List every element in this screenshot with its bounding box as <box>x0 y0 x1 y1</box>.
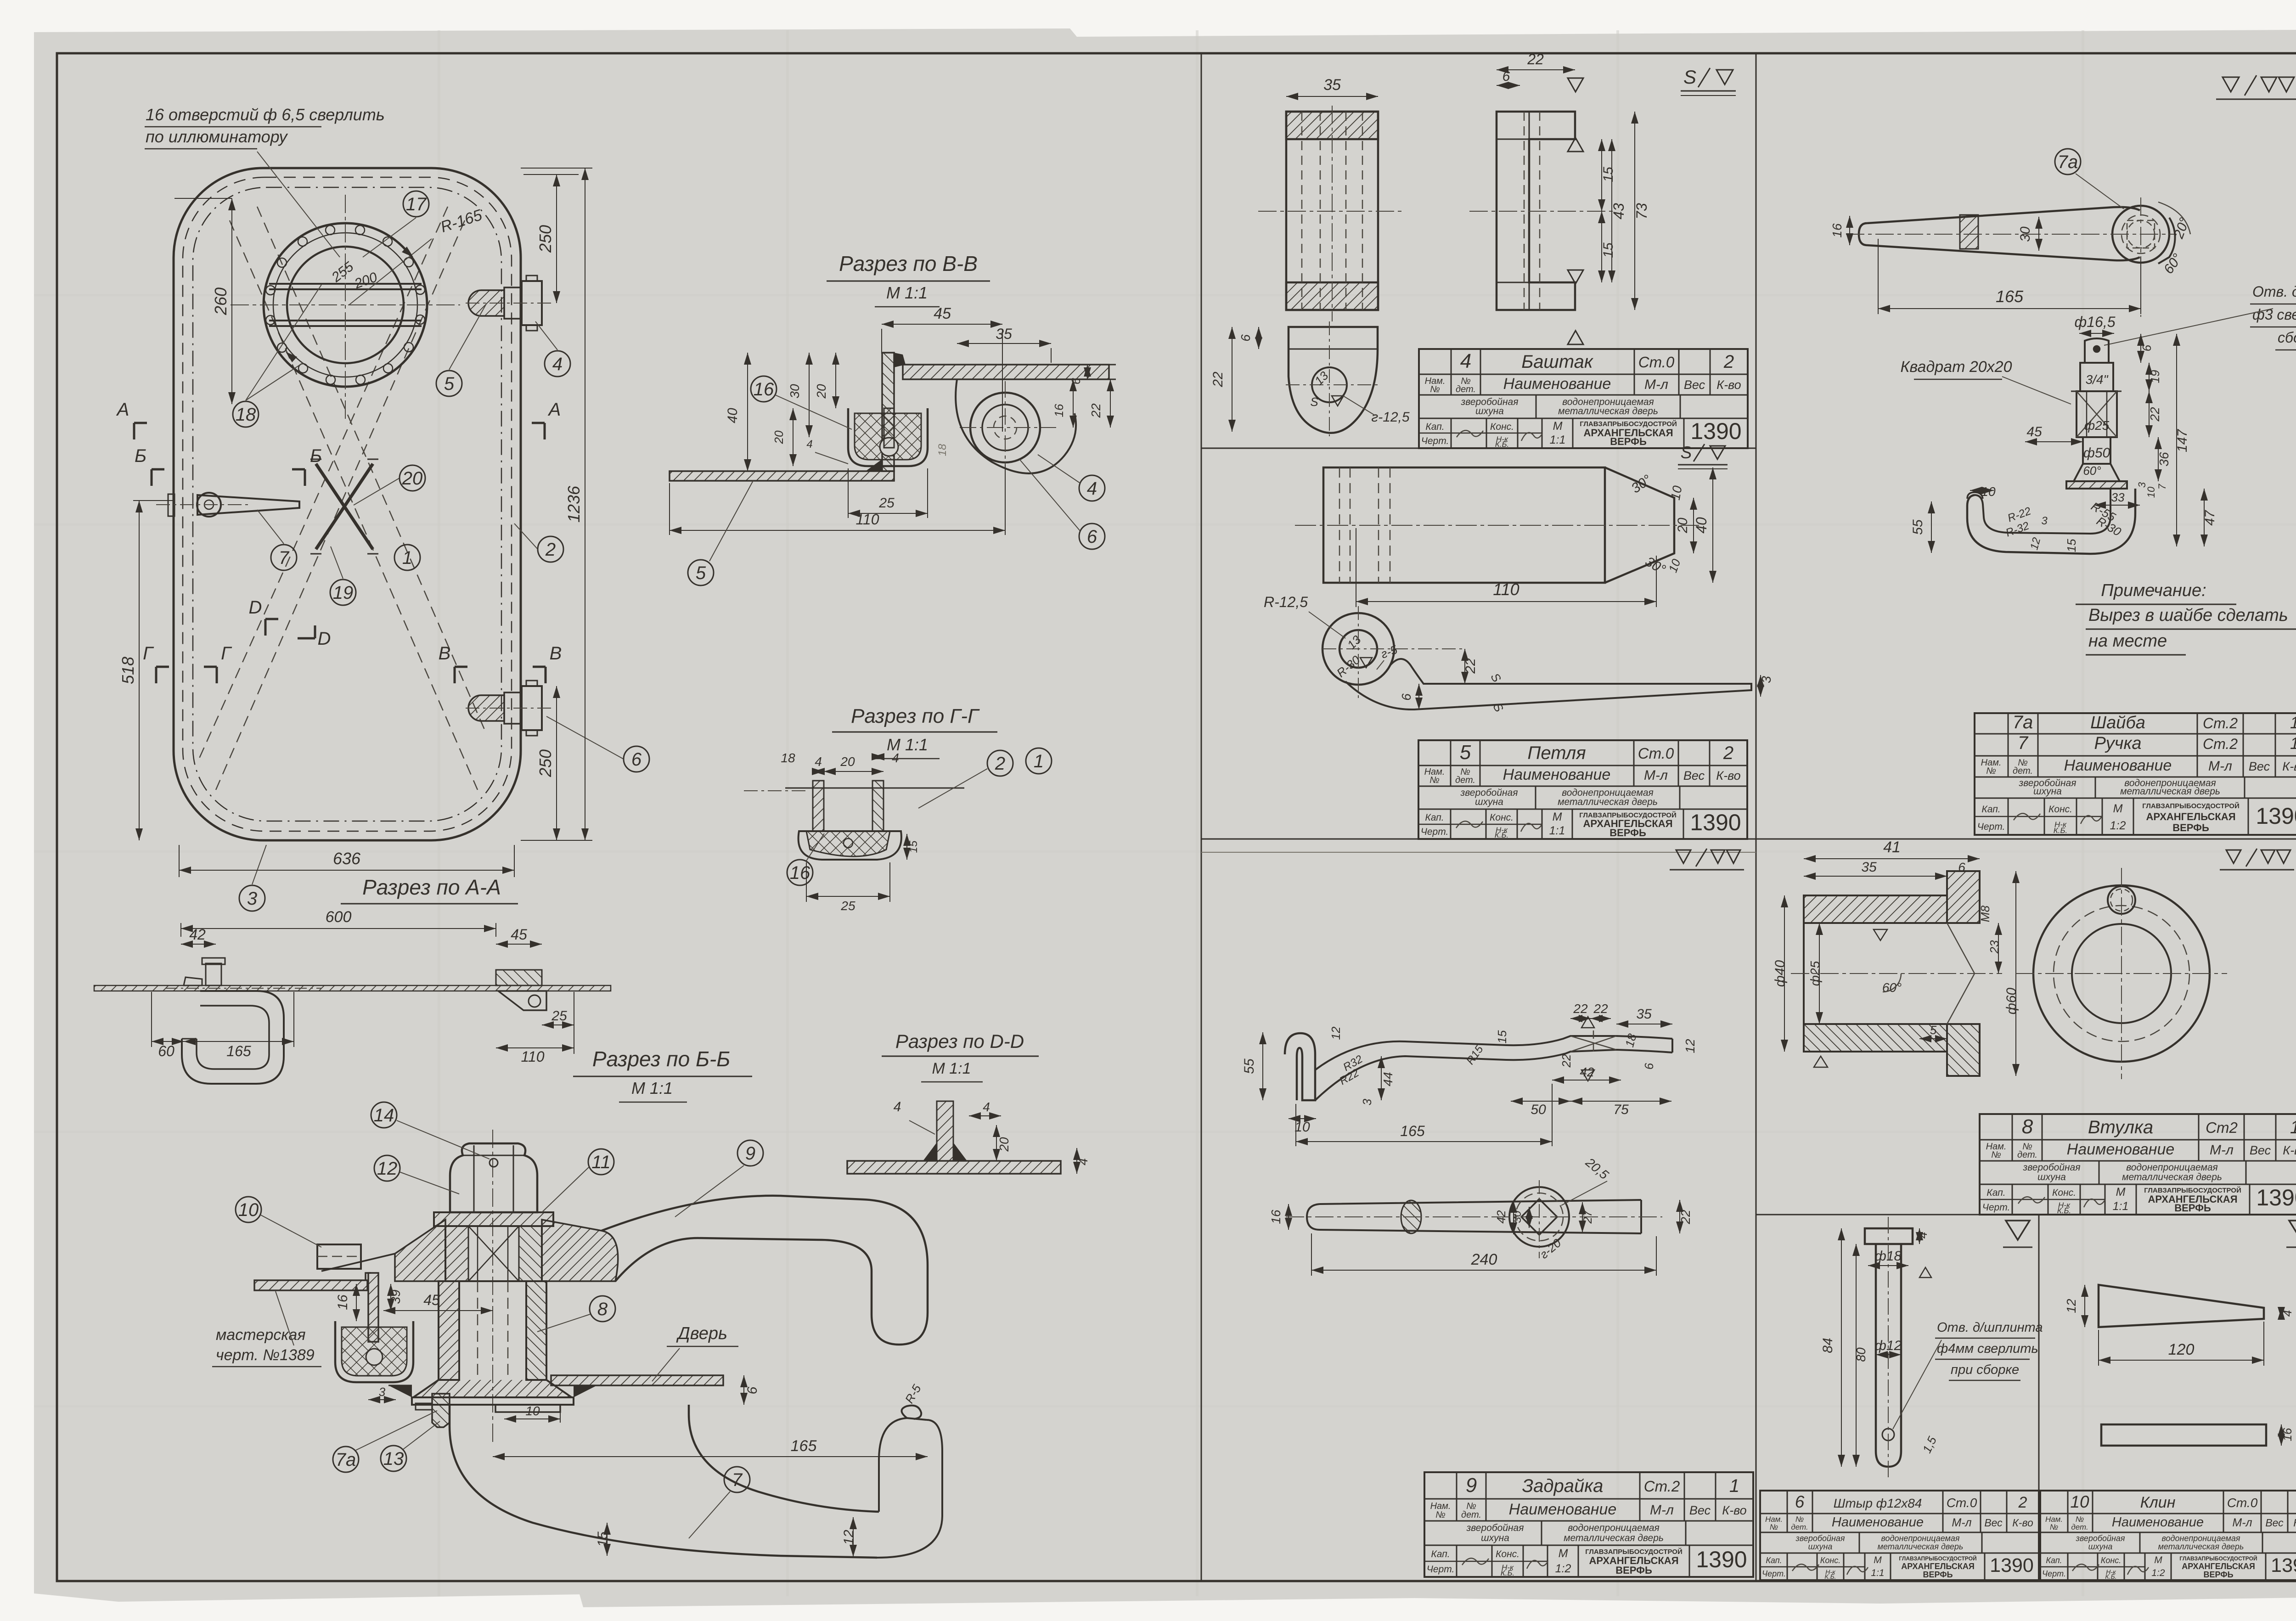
svg-text:дет.: дет. <box>1455 775 1475 785</box>
svg-text:30: 30 <box>788 384 802 399</box>
svg-text:Черт.: Черт. <box>1427 1564 1455 1575</box>
svg-text:8: 8 <box>597 1299 608 1319</box>
svg-text:Петля: Петля <box>1527 743 1586 763</box>
svg-text:Конс.: Конс. <box>1490 422 1514 432</box>
svg-text:В: В <box>550 643 562 664</box>
svg-text:Вес: Вес <box>1683 769 1705 782</box>
svg-text:дет.: дет. <box>2013 766 2033 776</box>
svg-text:Г: Г <box>221 643 232 664</box>
svg-text:1:2: 1:2 <box>2151 1568 2165 1578</box>
svg-text:7: 7 <box>2018 733 2029 753</box>
svg-text:44: 44 <box>1381 1072 1395 1086</box>
svg-text:20: 20 <box>772 430 786 444</box>
svg-text:5: 5 <box>696 563 706 583</box>
svg-text:6: 6 <box>1087 527 1097 547</box>
svg-text:10: 10 <box>1294 1120 1310 1135</box>
svg-text:600: 600 <box>326 908 352 926</box>
svg-text:4: 4 <box>894 1099 901 1114</box>
svg-text:165: 165 <box>791 1437 817 1455</box>
svg-text:Г: Г <box>143 643 154 664</box>
svg-text:84: 84 <box>1820 1338 1835 1353</box>
svg-text:Штыр ф12х84: Штыр ф12х84 <box>1834 1496 1922 1510</box>
svg-text:1:2: 1:2 <box>1555 1562 1571 1575</box>
svg-text:22: 22 <box>2148 407 2162 422</box>
svg-text:45: 45 <box>934 305 951 322</box>
svg-text:К.Б.: К.Б. <box>1495 831 1509 839</box>
svg-text:дет.: дет. <box>1791 1523 1808 1531</box>
svg-text:55: 55 <box>1910 519 1925 535</box>
svg-text:ф60: ф60 <box>2004 987 2019 1014</box>
svg-text:Наименование: Наименование <box>2067 1141 2175 1158</box>
svg-text:шхуна: шхуна <box>2037 1172 2066 1182</box>
svg-text:дет.: дет. <box>2017 1150 2037 1160</box>
svg-text:водонепроницаемая: водонепроницаемая <box>1568 1523 1660 1533</box>
svg-text:4: 4 <box>2280 1310 2294 1317</box>
svg-text:15: 15 <box>1601 242 1616 258</box>
svg-text:АРХАНГЕЛЬСКАЯ: АРХАНГЕЛЬСКАЯ <box>1901 1562 1975 1571</box>
svg-text:М-л: М-л <box>2232 1516 2252 1529</box>
svg-text:15: 15 <box>1495 1030 1509 1043</box>
svg-text:16: 16 <box>1830 223 1844 238</box>
svg-text:4: 4 <box>1087 478 1097 499</box>
svg-text:М: М <box>1553 810 1562 823</box>
svg-text:К.Б.: К.Б. <box>2057 1206 2071 1215</box>
svg-text:металлическая дверь: металлическая дверь <box>2122 1172 2222 1182</box>
svg-text:5: 5 <box>1460 741 1471 764</box>
svg-text:120: 120 <box>2168 1341 2195 1358</box>
svg-text:20: 20 <box>997 1137 1011 1152</box>
svg-text:М-л: М-л <box>1650 1503 1674 1518</box>
svg-text:Задрайка: Задрайка <box>1522 1476 1604 1496</box>
svg-text:ф50: ф50 <box>2083 445 2110 461</box>
svg-text:К-во: К-во <box>1716 378 1741 392</box>
svg-text:41: 41 <box>1883 839 1901 856</box>
svg-text:Черт.: Черт. <box>1982 1202 2010 1213</box>
svg-text:зверобойная: зверобойная <box>1466 1523 1524 1533</box>
svg-text:11: 11 <box>591 1152 611 1172</box>
svg-text:Ст.2: Ст.2 <box>2203 715 2238 732</box>
svg-text:3: 3 <box>1759 676 1773 683</box>
svg-text:1:1: 1:1 <box>1871 1568 1884 1578</box>
svg-text:Ст.0: Ст.0 <box>1947 1496 1977 1510</box>
svg-text:Кап.: Кап. <box>1766 1556 1782 1565</box>
svg-text:дет.: дет. <box>1456 384 1476 394</box>
svg-text:М: М <box>1553 420 1563 433</box>
svg-text:3: 3 <box>379 1385 386 1399</box>
svg-text:М: М <box>1874 1555 1882 1565</box>
svg-text:Разрез по Б-Б: Разрез по Б-Б <box>592 1047 730 1071</box>
svg-text:45: 45 <box>423 1292 440 1308</box>
svg-text:дет.: дет. <box>1461 1510 1481 1520</box>
svg-text:А: А <box>116 400 129 420</box>
svg-text:К.Б.: К.Б. <box>1501 1569 1515 1577</box>
svg-text:зверобойная: зверобойная <box>2023 1162 2081 1173</box>
svg-text:1390: 1390 <box>2271 1554 2296 1576</box>
svg-text:Вес: Вес <box>2265 1517 2284 1529</box>
svg-text:ВЕРФЬ: ВЕРФЬ <box>2174 1202 2211 1214</box>
svg-text:зверобойная: зверобойная <box>2075 1534 2125 1543</box>
svg-text:зверобойная: зверобойная <box>1795 1534 1845 1543</box>
svg-text:Кап.: Кап. <box>1986 1188 2005 1198</box>
svg-text:2: 2 <box>1723 743 1733 763</box>
svg-text:Втулка: Втулка <box>2088 1117 2153 1137</box>
svg-text:№: № <box>1430 384 1440 394</box>
svg-text:5: 5 <box>444 374 455 394</box>
svg-text:1:1: 1:1 <box>2113 1200 2129 1213</box>
svg-text:60°: 60° <box>2083 464 2101 478</box>
svg-text:М-л: М-л <box>1644 377 1668 392</box>
svg-text:40: 40 <box>725 408 740 423</box>
svg-text:3/4": 3/4" <box>2086 372 2109 387</box>
svg-text:ВЕРФЬ: ВЕРФЬ <box>2203 1570 2233 1579</box>
svg-text:250: 250 <box>536 749 555 777</box>
svg-text:22: 22 <box>1559 1054 1573 1068</box>
svg-text:110: 110 <box>855 511 879 528</box>
svg-text:К.Б.: К.Б. <box>2054 826 2068 835</box>
svg-text:М-л: М-л <box>2208 759 2232 774</box>
svg-text:Ст.2: Ст.2 <box>1644 1478 1680 1495</box>
svg-text:33: 33 <box>2111 490 2125 504</box>
svg-text:6: 6 <box>1399 693 1413 701</box>
svg-text:17: 17 <box>406 194 427 214</box>
svg-text:16: 16 <box>2280 1428 2294 1441</box>
svg-text:240: 240 <box>1471 1251 1497 1268</box>
svg-text:12: 12 <box>2064 1299 2078 1313</box>
svg-text:М: М <box>2154 1555 2162 1565</box>
svg-text:1236: 1236 <box>564 485 583 523</box>
svg-text:Разрез по Г-Г: Разрез по Г-Г <box>851 705 980 727</box>
svg-text:4: 4 <box>1076 1158 1090 1165</box>
svg-text:ВЕРФЬ: ВЕРФЬ <box>1923 1570 1953 1579</box>
svg-text:260: 260 <box>211 287 230 315</box>
svg-text:1390: 1390 <box>1690 418 1741 444</box>
svg-text:черт. №1389: черт. №1389 <box>216 1346 315 1364</box>
svg-text:18: 18 <box>936 444 949 456</box>
svg-text:35: 35 <box>1861 860 1877 875</box>
svg-text:Кап.: Кап. <box>1981 804 2000 815</box>
svg-text:Вес: Вес <box>1684 378 1705 392</box>
svg-text:ф25: ф25 <box>2084 418 2110 433</box>
svg-text:20: 20 <box>840 754 855 769</box>
svg-text:№: № <box>1770 1523 1778 1531</box>
svg-text:S: S <box>1310 395 1318 409</box>
svg-text:№: № <box>1991 1150 2001 1160</box>
svg-text:К-во: К-во <box>2012 1517 2033 1529</box>
svg-text:М-л: М-л <box>1952 1516 1971 1529</box>
svg-text:73: 73 <box>1633 203 1650 220</box>
svg-text:22: 22 <box>1593 1002 1608 1016</box>
svg-text:Наименование: Наименование <box>2064 757 2172 774</box>
svg-text:АРХАНГЕЛЬСКАЯ: АРХАНГЕЛЬСКАЯ <box>2146 811 2235 822</box>
svg-text:Кап.: Кап. <box>2046 1556 2062 1565</box>
svg-text:16: 16 <box>790 863 810 883</box>
svg-text:ВЕРФЬ: ВЕРФЬ <box>2172 822 2209 833</box>
svg-text:сборке: сборке <box>2278 329 2296 346</box>
svg-text:42: 42 <box>1580 1065 1594 1079</box>
svg-text:6: 6 <box>1795 1492 1805 1511</box>
svg-text:42: 42 <box>1494 1210 1508 1223</box>
svg-text:147: 147 <box>2175 429 2190 452</box>
svg-text:Наименование: Наименование <box>1832 1515 1924 1530</box>
svg-text:D: D <box>249 597 262 618</box>
svg-text:ГЛАВЗАПРЫБОСУДОСТРОЙ: ГЛАВЗАПРЫБОСУДОСТРОЙ <box>2179 1555 2257 1562</box>
svg-text:7: 7 <box>2156 484 2168 490</box>
svg-text:Вес: Вес <box>1984 1517 2003 1529</box>
svg-text:шхуна: шхуна <box>1475 797 1503 807</box>
svg-text:№: № <box>1435 1510 1446 1520</box>
svg-text:шхуна: шхуна <box>2088 1542 2113 1551</box>
svg-text:20: 20 <box>402 468 423 489</box>
svg-text:Кап.: Кап. <box>1431 1549 1450 1559</box>
svg-text:Клин: Клин <box>2140 1494 2176 1511</box>
svg-text:30: 30 <box>2018 226 2033 242</box>
svg-text:13: 13 <box>383 1449 404 1469</box>
svg-text:9: 9 <box>1466 1474 1477 1497</box>
svg-text:Вырез в шайбе сделать: Вырез в шайбе сделать <box>2088 606 2288 625</box>
svg-text:Наименование: Наименование <box>1509 1501 1617 1518</box>
svg-text:10: 10 <box>2145 486 2157 498</box>
svg-text:К.Б.: К.Б. <box>2105 1573 2116 1580</box>
svg-text:5: 5 <box>1930 1023 1937 1037</box>
svg-text:Конс.: Конс. <box>2052 1188 2076 1198</box>
svg-text:39: 39 <box>388 1289 403 1304</box>
svg-text:Черт.: Черт. <box>1977 822 2005 832</box>
svg-text:35: 35 <box>1636 1007 1652 1022</box>
svg-text:ГЛАВЗАПРЫБОСУДОСТРОЙ: ГЛАВЗАПРЫБОСУДОСТРОЙ <box>2142 802 2240 810</box>
svg-text:16: 16 <box>335 1295 350 1310</box>
svg-text:АРХАНГЕЛЬСКАЯ: АРХАНГЕЛЬСКАЯ <box>2182 1562 2255 1571</box>
svg-text:Конс.: Конс. <box>2048 804 2072 815</box>
svg-text:металлическая дверь: металлическая дверь <box>2158 1542 2244 1551</box>
svg-text:Отв. д/шплинта: Отв. д/шплинта <box>1937 1320 2043 1335</box>
svg-text:Ст.0: Ст.0 <box>1638 745 1674 762</box>
svg-text:Б: Б <box>135 446 146 466</box>
svg-text:М-л: М-л <box>1644 768 1668 783</box>
svg-text:водонепроницаемая: водонепроницаемая <box>1881 1534 1959 1543</box>
svg-text:18: 18 <box>781 751 795 765</box>
svg-text:М 1:1: М 1:1 <box>631 1079 673 1098</box>
svg-text:16 отверстий ф 6,5 сверлить: 16 отверстий ф 6,5 сверлить <box>146 105 385 124</box>
svg-text:1: 1 <box>2290 713 2296 732</box>
svg-text:6: 6 <box>2140 344 2154 351</box>
svg-text:1:1: 1:1 <box>1549 824 1565 837</box>
svg-text:на месте: на месте <box>2088 631 2167 651</box>
svg-text:Ст.0: Ст.0 <box>1638 354 1675 371</box>
svg-text:16: 16 <box>1269 1210 1283 1224</box>
svg-text:шхуна: шхуна <box>2033 786 2062 797</box>
svg-text:ф12: ф12 <box>1875 1338 1902 1353</box>
svg-text:К-во: К-во <box>1722 1503 1746 1517</box>
svg-text:Кап.: Кап. <box>1425 812 1444 823</box>
svg-text:ф18: ф18 <box>1875 1249 1902 1264</box>
svg-text:металлическая дверь: металлическая дверь <box>2120 786 2220 797</box>
svg-text:Дверь: Дверь <box>676 1324 727 1343</box>
svg-text:10: 10 <box>1668 484 1685 501</box>
svg-text:6: 6 <box>1958 860 1965 874</box>
svg-text:50: 50 <box>1531 1102 1546 1117</box>
svg-text:15: 15 <box>1601 167 1616 182</box>
svg-text:8: 8 <box>2022 1115 2033 1138</box>
svg-text:7: 7 <box>279 548 290 568</box>
svg-text:10: 10 <box>525 1404 540 1418</box>
svg-text:S: S <box>1681 443 1692 462</box>
svg-text:4: 4 <box>806 438 812 450</box>
svg-text:45: 45 <box>511 926 527 943</box>
svg-text:7а: 7а <box>336 1450 356 1470</box>
svg-text:43: 43 <box>1610 203 1627 220</box>
svg-text:Черт.: Черт. <box>2042 1569 2066 1578</box>
svg-text:518: 518 <box>118 657 137 684</box>
svg-text:Разрез по В-В: Разрез по В-В <box>839 252 978 276</box>
svg-text:ГЛАВЗАПРЫБОСУДОСТРОЙ: ГЛАВЗАПРЫБОСУДОСТРОЙ <box>1899 1555 1976 1562</box>
svg-text:металлическая дверь: металлическая дверь <box>1558 797 1658 807</box>
svg-text:шхуна: шхуна <box>1481 1533 1509 1543</box>
svg-text:22: 22 <box>1463 658 1478 674</box>
svg-text:3: 3 <box>1360 1098 1374 1105</box>
svg-text:Вес: Вес <box>1689 1503 1711 1517</box>
svg-text:12: 12 <box>841 1530 856 1545</box>
svg-text:4: 4 <box>552 354 563 374</box>
svg-text:ф25: ф25 <box>1808 961 1822 986</box>
svg-text:16: 16 <box>1052 404 1066 417</box>
svg-text:10: 10 <box>2070 1492 2089 1511</box>
svg-text:7а: 7а <box>2058 152 2078 172</box>
svg-text:165: 165 <box>226 1043 251 1059</box>
svg-text:42: 42 <box>189 926 206 943</box>
svg-text:47: 47 <box>2202 510 2217 526</box>
svg-text:2: 2 <box>2018 1494 2027 1511</box>
svg-text:№: № <box>1986 766 1996 776</box>
svg-text:К-во: К-во <box>1716 769 1740 782</box>
svg-text:R-12,5: R-12,5 <box>1264 594 1308 610</box>
svg-text:75: 75 <box>1613 1102 1629 1117</box>
svg-text:1: 1 <box>1729 1476 1739 1496</box>
svg-text:1390: 1390 <box>1990 1554 2034 1576</box>
svg-text:4: 4 <box>892 751 899 765</box>
svg-text:4: 4 <box>983 1100 990 1114</box>
svg-text:35: 35 <box>996 326 1012 342</box>
svg-text:М 1:1: М 1:1 <box>886 283 928 302</box>
svg-text:1: 1 <box>1034 751 1044 771</box>
svg-text:636: 636 <box>333 849 361 868</box>
svg-text:25: 25 <box>878 495 895 511</box>
svg-text:К.Б.: К.Б. <box>1495 440 1509 449</box>
svg-text:Шайба: Шайба <box>2090 713 2145 732</box>
svg-text:Наименование: Наименование <box>1503 766 1611 783</box>
svg-text:45: 45 <box>2026 424 2042 439</box>
svg-text:А: А <box>548 400 561 420</box>
svg-text:1390: 1390 <box>2256 803 2296 829</box>
svg-text:110: 110 <box>521 1048 544 1065</box>
svg-text:22: 22 <box>1527 51 1544 68</box>
svg-text:9: 9 <box>745 1143 755 1164</box>
svg-text:3: 3 <box>2041 515 2048 527</box>
svg-text:металлическая дверь: металлическая дверь <box>1564 1533 1664 1543</box>
svg-text:Баштак: Баштак <box>1521 352 1594 372</box>
svg-text:7а: 7а <box>2013 712 2033 732</box>
svg-text:дет.: дет. <box>2071 1523 2088 1531</box>
svg-text:Конс.: Конс. <box>1490 812 1514 823</box>
svg-text:110: 110 <box>1493 580 1519 599</box>
svg-text:Наименование: Наименование <box>1503 375 1611 393</box>
svg-text:6: 6 <box>1238 334 1253 342</box>
svg-text:D: D <box>318 629 331 649</box>
svg-text:Примечание:: Примечание: <box>2101 581 2206 600</box>
svg-text:Конс.: Конс. <box>1496 1549 1519 1559</box>
svg-text:Черт.: Черт. <box>1421 436 1449 446</box>
svg-text:Б: Б <box>310 446 322 466</box>
svg-text:К-во: К-во <box>2282 760 2296 773</box>
svg-text:ф4мм сверлить: ф4мм сверлить <box>1937 1341 2038 1356</box>
svg-text:Ст.0: Ст.0 <box>2227 1496 2258 1510</box>
svg-text:22: 22 <box>1573 1002 1588 1016</box>
svg-text:В: В <box>439 643 451 664</box>
svg-text:М8: М8 <box>1978 905 1992 922</box>
svg-text:по иллюминатору: по иллюминатору <box>146 127 288 146</box>
svg-text:6: 6 <box>1642 1063 1656 1069</box>
svg-text:36: 36 <box>2157 452 2171 467</box>
svg-text:25: 25 <box>551 1008 567 1024</box>
svg-text:К.Б.: К.Б. <box>1824 1573 1836 1580</box>
svg-text:Ручка: Ручка <box>2094 734 2141 753</box>
svg-text:ВЕРФЬ: ВЕРФЬ <box>1609 827 1646 839</box>
svg-text:250: 250 <box>536 225 555 253</box>
svg-text:М 1:1: М 1:1 <box>932 1060 971 1077</box>
svg-text:6: 6 <box>1069 377 1083 384</box>
svg-text:М: М <box>1559 1547 1568 1560</box>
svg-text:1:1: 1:1 <box>1550 433 1566 446</box>
svg-text:Ст2: Ст2 <box>2206 1119 2238 1136</box>
svg-text:12: 12 <box>1329 1026 1343 1040</box>
svg-text:15: 15 <box>2065 539 2078 552</box>
svg-text:Вес: Вес <box>2249 760 2270 773</box>
svg-text:165: 165 <box>1400 1123 1425 1139</box>
svg-text:№: № <box>1429 775 1440 785</box>
svg-text:S: S <box>1683 66 1696 88</box>
svg-text:6: 6 <box>631 749 642 770</box>
svg-text:19: 19 <box>333 583 354 603</box>
svg-text:22: 22 <box>1678 1210 1693 1225</box>
svg-text:1: 1 <box>402 548 412 568</box>
svg-text:Наименование: Наименование <box>2112 1515 2204 1530</box>
svg-text:12: 12 <box>1683 1039 1697 1053</box>
svg-text:40: 40 <box>1693 517 1710 534</box>
svg-text:М: М <box>2113 802 2123 815</box>
svg-text:4: 4 <box>1460 350 1471 372</box>
svg-text:Конс.: Конс. <box>2101 1556 2122 1565</box>
svg-text:1390: 1390 <box>2256 1185 2296 1210</box>
svg-text:Вес: Вес <box>2250 1143 2271 1157</box>
svg-text:1: 1 <box>2290 1117 2296 1137</box>
svg-text:Разрез по D-D: Разрез по D-D <box>895 1030 1024 1052</box>
svg-text:1:2: 1:2 <box>2110 819 2126 832</box>
svg-text:Конс.: Конс. <box>1820 1556 1841 1565</box>
svg-text:г-12,5: г-12,5 <box>1371 410 1409 425</box>
svg-text:2: 2 <box>995 754 1005 774</box>
svg-text:ф16,5: ф16,5 <box>2074 314 2115 330</box>
svg-text:60: 60 <box>158 1043 174 1059</box>
svg-text:10: 10 <box>238 1200 259 1220</box>
svg-text:ВЕРФЬ: ВЕРФЬ <box>1610 436 1647 447</box>
svg-text:шхуна: шхуна <box>1475 406 1504 417</box>
svg-text:1: 1 <box>2290 734 2296 753</box>
svg-text:2: 2 <box>545 540 556 560</box>
svg-text:Черт.: Черт. <box>1762 1569 1786 1578</box>
svg-text:водонепроницаемая: водонепроницаемая <box>2161 1534 2240 1543</box>
svg-text:М-л: М-л <box>2210 1143 2234 1158</box>
svg-text:М: М <box>2116 1186 2126 1199</box>
svg-text:3: 3 <box>247 889 257 909</box>
